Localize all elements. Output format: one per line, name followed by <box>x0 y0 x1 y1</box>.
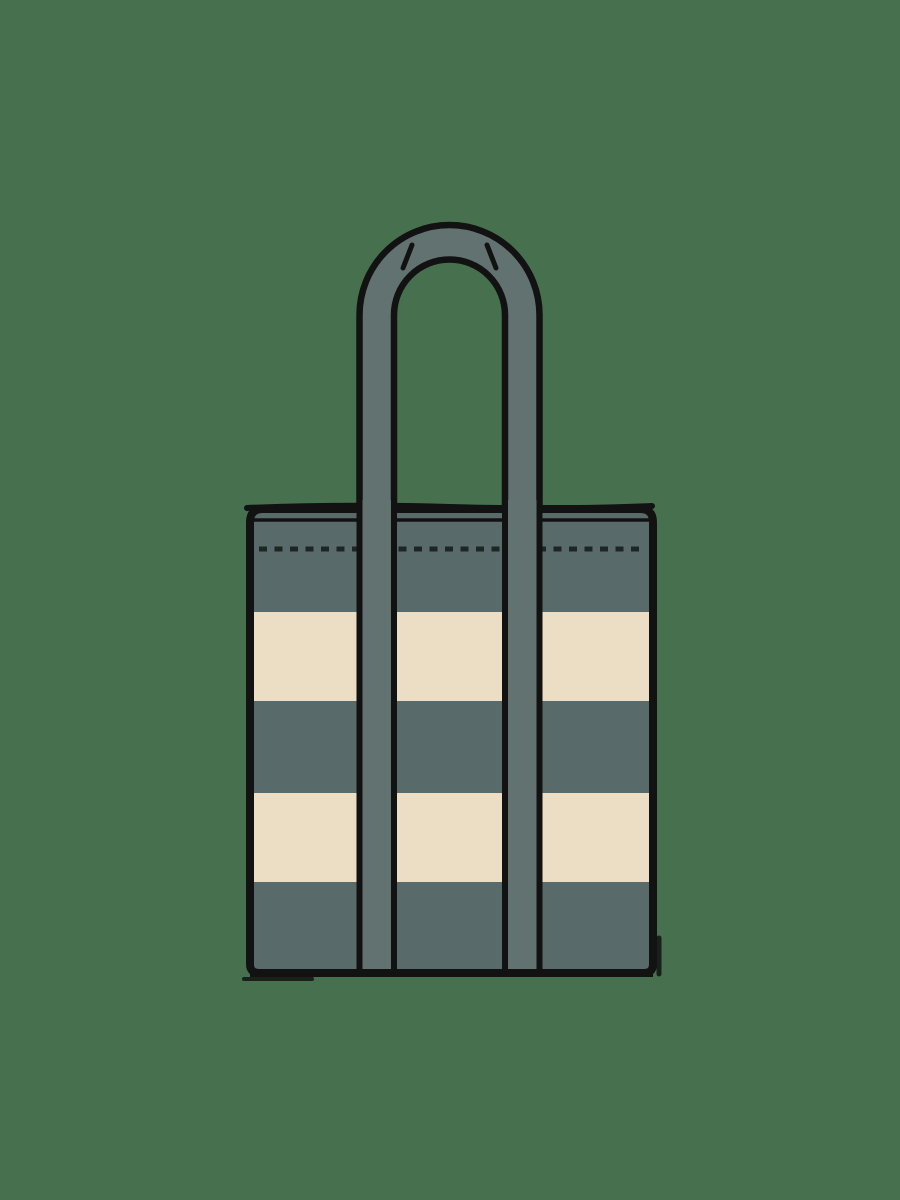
bag-stripe-cream <box>250 612 653 701</box>
bag-strap <box>360 500 395 971</box>
bag-stripe-gray <box>250 509 653 612</box>
bag-stripe-cream <box>250 793 653 882</box>
illustration-canvas <box>0 0 900 1200</box>
bag-body <box>250 509 653 973</box>
rim-top-line <box>247 506 652 509</box>
bag-stripe-gray <box>250 882 653 973</box>
tote-bag-illustration <box>0 0 900 1200</box>
bag-stripe-gray <box>250 701 653 793</box>
bag-strap <box>505 500 540 971</box>
